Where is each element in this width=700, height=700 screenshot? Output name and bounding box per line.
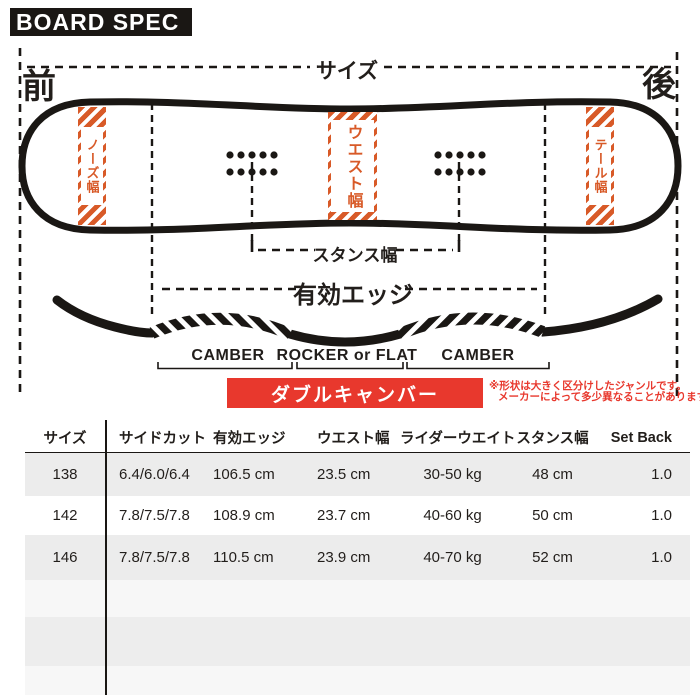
- tail-width-label: テール幅: [594, 138, 607, 194]
- stance-width-label: スタンス幅: [313, 241, 398, 266]
- spec-table: サイズ サイドカット 有効エッジ ウエスト幅 ライダーウエイト スタンス幅 Se…: [25, 423, 690, 695]
- header-size: サイズ: [25, 427, 105, 448]
- cell-sidecut: 7.8/7.5/7.8: [105, 507, 205, 524]
- cell-effective-edge: 106.5 cm: [205, 466, 310, 483]
- cell-waist-width: 23.9 cm: [310, 549, 400, 566]
- empty-row: [25, 666, 690, 695]
- empty-row: [25, 580, 690, 617]
- cell-set-back: 1.0: [600, 549, 690, 566]
- front-label: 前: [22, 70, 56, 104]
- cell-effective-edge: 108.9 cm: [205, 507, 310, 524]
- size-dimension-label: サイズ: [316, 55, 378, 85]
- effective-edge-label: 有効エッジ: [293, 275, 413, 310]
- cell-rider-weight: 40-60 kg: [400, 507, 505, 524]
- table-row: 138 6.4/6.0/6.4 106.5 cm 23.5 cm 30-50 k…: [25, 453, 690, 496]
- cell-effective-edge: 110.5 cm: [205, 549, 310, 566]
- table-column-divider: [105, 420, 107, 695]
- header-set-back: Set Back: [600, 430, 690, 446]
- nose-width-band: ノーズ幅: [78, 107, 106, 225]
- waist-width-label: ウエスト幅: [345, 124, 361, 209]
- board-spec-infographic: ノーズ幅 ウエスト幅 テール幅 BOARD SPEC 前 後 サイズ スタンス幅…: [0, 0, 700, 700]
- camber-right-label: CAMBER: [441, 347, 514, 365]
- table-row: 146 7.8/7.5/7.8 110.5 cm 23.9 cm 40-70 k…: [25, 535, 690, 580]
- cell-rider-weight: 40-70 kg: [400, 549, 505, 566]
- waist-width-band: ウエスト幅: [328, 112, 377, 220]
- note-line-1: ※形状は大きく区分けしたジャンルです。: [489, 381, 687, 392]
- profile-type-badge: ダブルキャンバー: [227, 378, 483, 408]
- cell-stance-width: 48 cm: [505, 466, 600, 483]
- note-line-2: メーカーによって多少異なることがあります: [498, 392, 700, 403]
- cell-size: 146: [25, 549, 105, 566]
- cell-set-back: 1.0: [600, 466, 690, 483]
- camber-left-label: CAMBER: [191, 347, 264, 365]
- cell-set-back: 1.0: [600, 507, 690, 524]
- cell-stance-width: 50 cm: [505, 507, 600, 524]
- cell-sidecut: 7.8/7.5/7.8: [105, 549, 205, 566]
- tail-width-band: テール幅: [586, 107, 614, 225]
- header-waist-width: ウエスト幅: [310, 427, 400, 448]
- nose-width-label: ノーズ幅: [86, 138, 99, 194]
- cell-waist-width: 23.5 cm: [310, 466, 400, 483]
- board-spec-title: BOARD SPEC: [10, 8, 192, 36]
- header-stance-width: スタンス幅: [505, 427, 600, 448]
- header-sidecut: サイドカット: [105, 427, 205, 448]
- camber-zone-right-hatch: [400, 318, 543, 334]
- cell-sidecut: 6.4/6.0/6.4: [105, 466, 205, 483]
- cell-rider-weight: 30-50 kg: [400, 466, 505, 483]
- cell-size: 138: [25, 466, 105, 483]
- table-row: 142 7.8/7.5/7.8 108.9 cm 23.7 cm 40-60 k…: [25, 496, 690, 535]
- cell-waist-width: 23.7 cm: [310, 507, 400, 524]
- back-label: 後: [642, 68, 676, 102]
- header-effective-edge: 有効エッジ: [205, 427, 310, 448]
- camber-zone-left-hatch: [152, 319, 290, 334]
- spec-table-header-row: サイズ サイドカット 有効エッジ ウエスト幅 ライダーウエイト スタンス幅 Se…: [25, 423, 690, 453]
- rocker-label: ROCKER or FLAT: [277, 347, 418, 365]
- cell-size: 142: [25, 507, 105, 524]
- cell-stance-width: 52 cm: [505, 549, 600, 566]
- empty-row: [25, 617, 690, 666]
- header-rider-weight: ライダーウエイト: [400, 427, 505, 448]
